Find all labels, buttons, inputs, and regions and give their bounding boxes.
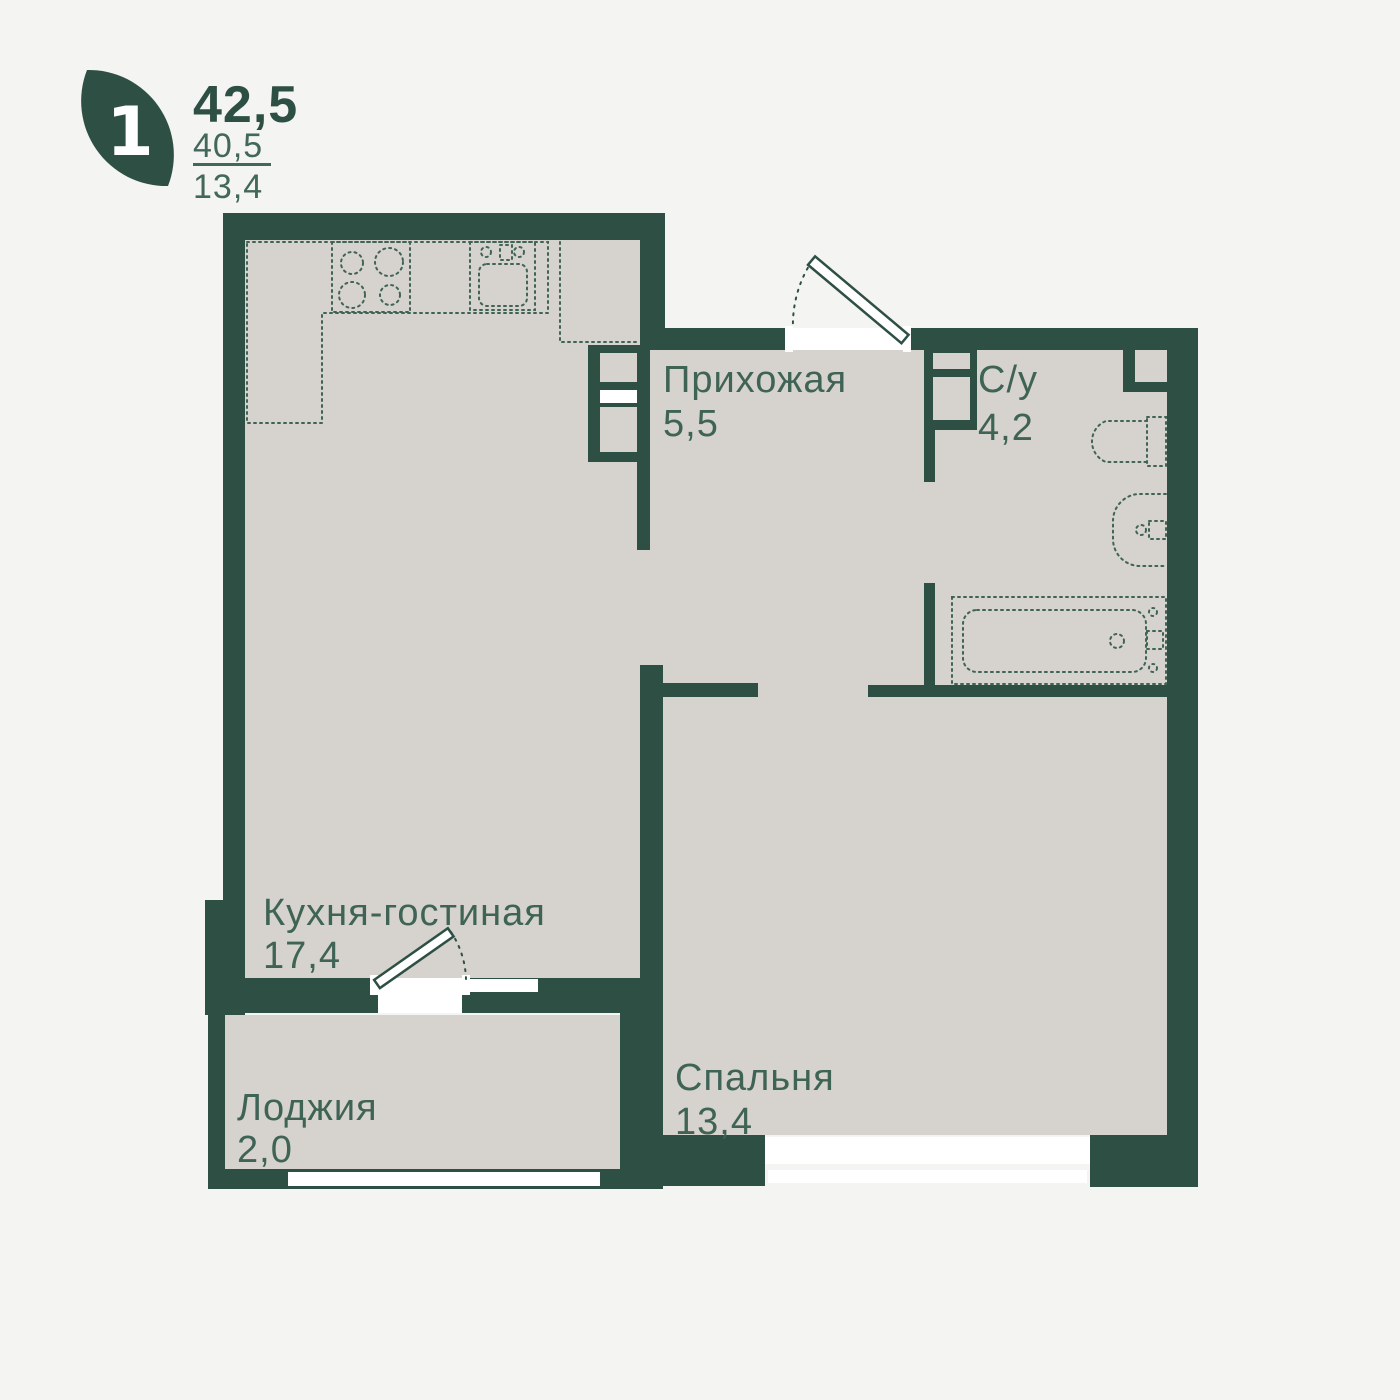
bathroom-label: С/у [978,359,1038,401]
total-area: 42,5 [193,76,298,134]
floor-plan-page: Кухня-гостиная 17,4 Прихожая 5,5 С/у 4,2… [0,0,1400,1400]
bedroom-label: Спальня [675,1057,835,1099]
loggia-window-icon [288,1172,600,1186]
bedroom-area: 13,4 [675,1101,753,1143]
kitchen-living-label: Кухня-гостиная [263,892,546,934]
rooms-count: 1 [106,93,153,172]
loggia-label: Лоджия [237,1087,378,1129]
loggia-area: 2,0 [237,1129,293,1171]
bedroom-window-sill [768,1170,1087,1183]
living-area: 40,5 [193,127,263,165]
bathroom-area: 4,2 [978,407,1034,449]
balcony-door-opening [378,978,462,1013]
kitchen-living-area: 17,4 [263,935,341,977]
door-jamb [785,326,793,352]
kitchen-living-floor [245,240,640,978]
hallway-label: Прихожая [663,359,847,401]
window-icon [470,979,538,992]
kitchen-area-value: 13,4 [193,168,263,206]
badge-divider [193,163,271,166]
floor-plan: Кухня-гостиная 17,4 Прихожая 5,5 С/у 4,2… [0,0,1400,1400]
bedroom-window-icon [765,1137,1090,1164]
hallway-area: 5,5 [663,403,719,445]
